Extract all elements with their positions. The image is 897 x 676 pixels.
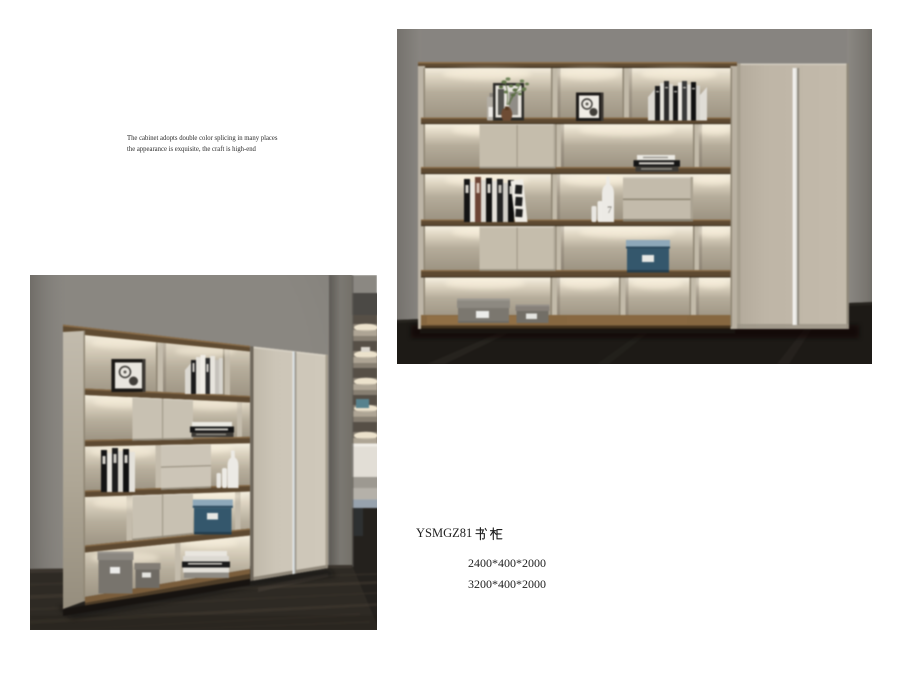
svg-text:7: 7 [607,205,612,215]
